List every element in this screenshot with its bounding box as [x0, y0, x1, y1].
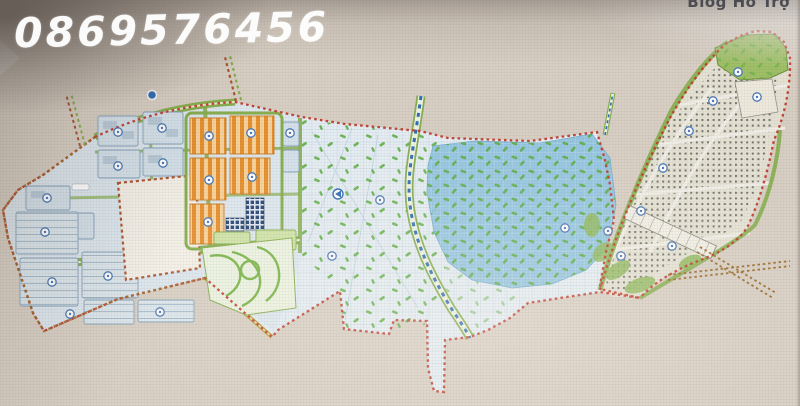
central-park — [202, 238, 296, 315]
gate-marker-icon — [148, 91, 157, 100]
node-icon — [248, 173, 256, 181]
lake-specks — [427, 134, 616, 288]
node-icon — [709, 97, 717, 105]
node-icon — [41, 228, 49, 236]
node-icon — [159, 159, 167, 167]
node-icon — [604, 227, 612, 235]
vacant-parcel — [118, 175, 200, 280]
node-icon — [204, 218, 212, 226]
node-icon — [286, 129, 294, 137]
node-icon — [114, 162, 122, 170]
photographed-screen: 0869576456 Blog Hỗ Trợ — [0, 0, 800, 406]
node-icon — [48, 278, 56, 286]
eco-lake-zone — [427, 134, 616, 288]
node-icon — [668, 242, 676, 250]
node-icon — [158, 124, 166, 132]
node-icon — [685, 127, 693, 135]
stub-north-right-canal — [605, 93, 613, 135]
node-icon — [114, 128, 122, 136]
node-icon — [617, 252, 625, 260]
node-icon — [66, 310, 74, 318]
stub-north-left — [225, 56, 241, 101]
node-icon — [247, 129, 255, 137]
node-icon — [734, 68, 742, 76]
node-icon — [156, 308, 164, 316]
node-icon — [637, 207, 645, 215]
node-icon — [561, 224, 569, 232]
direction-marker-icon — [333, 189, 343, 199]
node-icon — [376, 196, 384, 204]
watermark-phone: 0869576456 — [14, 3, 330, 58]
node-icon — [205, 132, 213, 140]
node-icon — [753, 93, 761, 101]
node-icon — [328, 252, 336, 260]
node-icon — [659, 164, 667, 172]
master-plan-map — [0, 0, 800, 406]
node-icon — [104, 272, 112, 280]
right-residential-arm — [584, 31, 790, 298]
support-blog-label: Blog Hỗ Trợ — [687, 0, 790, 11]
node-icon — [205, 176, 213, 184]
stub-northwest — [66, 93, 85, 146]
road-name-chip — [72, 184, 89, 190]
left-urban-district — [3, 102, 302, 337]
node-icon — [43, 194, 51, 202]
